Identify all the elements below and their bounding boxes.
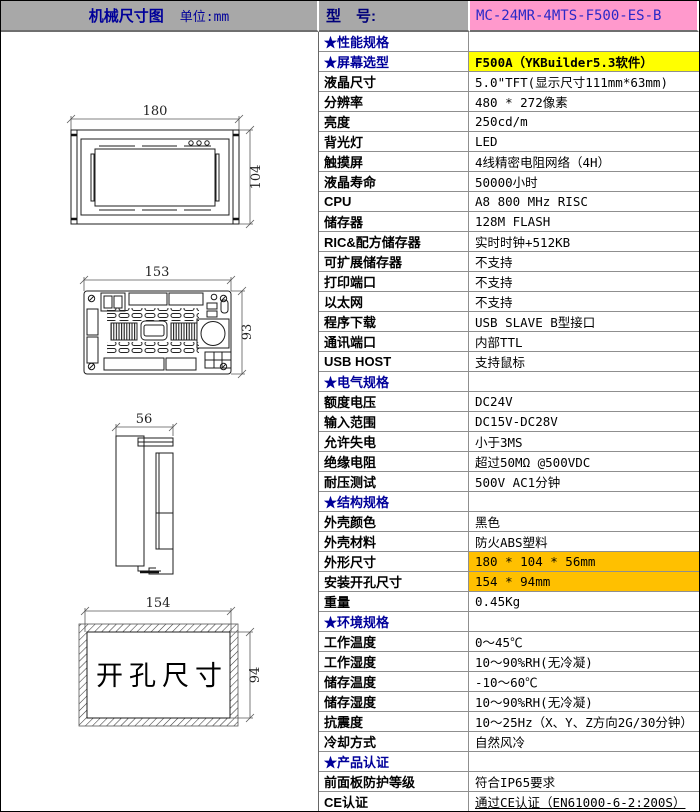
spec-section-row: ★性能规格 bbox=[319, 32, 699, 52]
spec-row: 背光灯LED bbox=[319, 132, 699, 152]
spec-label: 额度电压 bbox=[319, 392, 469, 411]
spec-value: DC24V bbox=[469, 392, 699, 411]
spec-value bbox=[469, 372, 699, 391]
spec-label: ★性能规格 bbox=[319, 32, 469, 51]
cutout-caption: 开孔尺寸 bbox=[96, 661, 228, 692]
spec-value: 480 * 272像素 bbox=[469, 92, 699, 111]
spec-value: 内部TTL bbox=[469, 332, 699, 351]
spec-row: 分辨率480 * 272像素 bbox=[319, 92, 699, 112]
spec-label: 耐压测试 bbox=[319, 472, 469, 491]
spec-label: 前面板防护等级 bbox=[319, 772, 469, 791]
spec-value: 通过CE认证（EN61000-6-2:200S） bbox=[469, 792, 699, 811]
spec-value: USB SLAVE B型接口 bbox=[469, 312, 699, 331]
unit-label: 单位:mm bbox=[180, 6, 229, 25]
spec-row: 耐压测试500V AC1分钟 bbox=[319, 472, 699, 492]
spec-row: 通讯端口内部TTL bbox=[319, 332, 699, 352]
spec-row: CE认证通过CE认证（EN61000-6-2:200S） bbox=[319, 792, 699, 811]
spec-label: 重量 bbox=[319, 592, 469, 611]
spec-row: 重量0.45Kg bbox=[319, 592, 699, 612]
header-title-cell: 机械尺寸图 单位:mm bbox=[1, 1, 319, 32]
spec-label: RIC&配方储存器 bbox=[319, 232, 469, 251]
spec-row: 工作湿度10～90%RH(无冷凝) bbox=[319, 652, 699, 672]
model-number: MC-24MR-4MTS-F500-ES-B bbox=[476, 8, 661, 24]
spec-row: 输入范围DC15V-DC28V bbox=[319, 412, 699, 432]
spec-row: 储存器128M FLASH bbox=[319, 212, 699, 232]
spec-row: 储存湿度10～90%RH(无冷凝) bbox=[319, 692, 699, 712]
spec-row: 抗震度10～25Hz（X、Y、Z方向2G/30分钟） bbox=[319, 712, 699, 732]
spec-value bbox=[469, 612, 699, 631]
spec-value: 154 * 94mm bbox=[469, 572, 699, 591]
spec-label: 储存温度 bbox=[319, 672, 469, 691]
page-title: 机械尺寸图 bbox=[89, 5, 164, 26]
spec-label: ★结构规格 bbox=[319, 492, 469, 511]
spec-section-row: ★产品认证 bbox=[319, 752, 699, 772]
spec-row: 打印端口不支持 bbox=[319, 272, 699, 292]
spec-label: 液晶寿命 bbox=[319, 172, 469, 191]
spec-label: 储存湿度 bbox=[319, 692, 469, 711]
spec-label: ★环境规格 bbox=[319, 612, 469, 631]
cutout-diagram: 154 开孔尺寸 94 bbox=[79, 596, 263, 726]
spec-row: 安装开孔尺寸154 * 94mm bbox=[319, 572, 699, 592]
spec-value: 10～25Hz（X、Y、Z方向2G/30分钟） bbox=[469, 712, 699, 731]
spec-label: 输入范围 bbox=[319, 412, 469, 431]
spec-label: 以太网 bbox=[319, 292, 469, 311]
spec-row: 前面板防护等级符合IP65要求 bbox=[319, 772, 699, 792]
spec-label: 外形尺寸 bbox=[319, 552, 469, 571]
spec-value: 实时时钟+512KB bbox=[469, 232, 699, 251]
spec-label: CPU bbox=[319, 192, 469, 211]
spec-value: 防火ABS塑料 bbox=[469, 532, 699, 551]
spec-value: 250cd/m bbox=[469, 112, 699, 131]
spec-label: 触摸屏 bbox=[319, 152, 469, 171]
spec-row: 绝缘电阻超过50MΩ @500VDC bbox=[319, 452, 699, 472]
spec-value bbox=[469, 752, 699, 771]
spec-row: 外壳颜色黑色 bbox=[319, 512, 699, 532]
spec-label: 抗震度 bbox=[319, 712, 469, 731]
spec-label: 工作温度 bbox=[319, 632, 469, 651]
spec-label: 打印端口 bbox=[319, 272, 469, 291]
dimension-drawings: 180 104 153 bbox=[1, 32, 318, 812]
spec-value: 128M FLASH bbox=[469, 212, 699, 231]
spec-row: 冷却方式自然风冷 bbox=[319, 732, 699, 752]
front-view-diagram: 180 104 bbox=[67, 104, 264, 228]
spec-value: F500A（YKBuilder5.3软件） bbox=[469, 52, 699, 71]
front-width-dim: 180 bbox=[143, 104, 168, 119]
spec-row: 外形尺寸180 * 104 * 56mm bbox=[319, 552, 699, 572]
spec-value: LED bbox=[469, 132, 699, 151]
mechanical-drawings-panel: 180 104 153 bbox=[1, 32, 319, 812]
spec-value bbox=[469, 492, 699, 511]
spec-value: A8 800 MHz RISC bbox=[469, 192, 699, 211]
side-depth-dim: 56 bbox=[136, 412, 153, 427]
spec-label: 通讯端口 bbox=[319, 332, 469, 351]
front-height-dim: 104 bbox=[249, 165, 264, 190]
spec-value: 支持鼠标 bbox=[469, 352, 699, 371]
spec-value: 不支持 bbox=[469, 252, 699, 271]
spec-label: 程序下载 bbox=[319, 312, 469, 331]
spec-label: 工作湿度 bbox=[319, 652, 469, 671]
spec-value: 10～90%RH(无冷凝) bbox=[469, 692, 699, 711]
spec-row: 触摸屏4线精密电阻网络（4H） bbox=[319, 152, 699, 172]
spec-value: 超过50MΩ @500VDC bbox=[469, 452, 699, 471]
spec-label: 允许失电 bbox=[319, 432, 469, 451]
spec-label: 液晶尺寸 bbox=[319, 72, 469, 91]
spec-label: ★产品认证 bbox=[319, 752, 469, 771]
spec-row: RIC&配方储存器实时时钟+512KB bbox=[319, 232, 699, 252]
spec-value: 4线精密电阻网络（4H） bbox=[469, 152, 699, 171]
spec-section-row: ★环境规格 bbox=[319, 612, 699, 632]
spec-value: 500V AC1分钟 bbox=[469, 472, 699, 491]
spec-value bbox=[469, 32, 699, 51]
spec-label: CE认证 bbox=[319, 792, 469, 811]
spec-value: -10～60℃ bbox=[469, 672, 699, 691]
cutout-height-dim: 94 bbox=[248, 667, 263, 684]
spec-value: 自然风冷 bbox=[469, 732, 699, 751]
spec-value: 0～45℃ bbox=[469, 632, 699, 651]
spec-label: 外壳颜色 bbox=[319, 512, 469, 531]
spec-row: 允许失电小于3MS bbox=[319, 432, 699, 452]
spec-value: 小于3MS bbox=[469, 432, 699, 451]
spec-row: 外壳材料防火ABS塑料 bbox=[319, 532, 699, 552]
spec-section-row: ★电气规格 bbox=[319, 372, 699, 392]
spec-label: 绝缘电阻 bbox=[319, 452, 469, 471]
spec-row: CPUA8 800 MHz RISC bbox=[319, 192, 699, 212]
spec-value: 50000小时 bbox=[469, 172, 699, 191]
spec-row: 可扩展储存器不支持 bbox=[319, 252, 699, 272]
spec-row: 亮度250cd/m bbox=[319, 112, 699, 132]
spec-value: 5.0"TFT(显示尺寸111mm*63mm) bbox=[469, 72, 699, 91]
spec-label: USB HOST bbox=[319, 352, 469, 371]
spec-section-row: ★屏幕选型F500A（YKBuilder5.3软件） bbox=[319, 52, 699, 72]
spec-row: 额度电压DC24V bbox=[319, 392, 699, 412]
spec-label: 安装开孔尺寸 bbox=[319, 572, 469, 591]
spec-label: 亮度 bbox=[319, 112, 469, 131]
spec-label: 分辨率 bbox=[319, 92, 469, 111]
spec-row: 液晶尺寸5.0"TFT(显示尺寸111mm*63mm) bbox=[319, 72, 699, 92]
spec-value: DC15V-DC28V bbox=[469, 412, 699, 431]
model-label: 型 号: bbox=[326, 5, 376, 26]
spec-label: 外壳材料 bbox=[319, 532, 469, 551]
spec-sheet-page: 机械尺寸图 单位:mm 型 号: MC-24MR-4MTS-F500-ES-B bbox=[0, 0, 700, 812]
spec-section-row: ★结构规格 bbox=[319, 492, 699, 512]
spec-label: 可扩展储存器 bbox=[319, 252, 469, 271]
rear-width-dim: 153 bbox=[145, 265, 170, 280]
cutout-width-dim: 154 bbox=[146, 596, 171, 611]
spec-row: 以太网不支持 bbox=[319, 292, 699, 312]
spec-value: 符合IP65要求 bbox=[469, 772, 699, 791]
spec-row: 液晶寿命50000小时 bbox=[319, 172, 699, 192]
spec-value: 180 * 104 * 56mm bbox=[469, 552, 699, 571]
spec-label: 冷却方式 bbox=[319, 732, 469, 751]
spec-table: ★性能规格★屏幕选型F500A（YKBuilder5.3软件）液晶尺寸5.0"T… bbox=[319, 32, 699, 811]
model-value-cell: MC-24MR-4MTS-F500-ES-B bbox=[470, 1, 699, 32]
spec-value: 不支持 bbox=[469, 272, 699, 291]
spec-row: 工作温度0～45℃ bbox=[319, 632, 699, 652]
spec-value: 10～90%RH(无冷凝) bbox=[469, 652, 699, 671]
spec-label: ★屏幕选型 bbox=[319, 52, 469, 71]
header-row: 机械尺寸图 单位:mm 型 号: MC-24MR-4MTS-F500-ES-B bbox=[1, 1, 699, 32]
model-label-cell: 型 号: bbox=[319, 1, 470, 32]
spec-row: 程序下载USB SLAVE B型接口 bbox=[319, 312, 699, 332]
spec-label: ★电气规格 bbox=[319, 372, 469, 391]
side-view-diagram: 56 bbox=[112, 412, 177, 574]
rear-view-diagram: 153 bbox=[80, 265, 255, 378]
spec-label: 储存器 bbox=[319, 212, 469, 231]
spec-value: 0.45Kg bbox=[469, 592, 699, 611]
spec-label: 背光灯 bbox=[319, 132, 469, 151]
rear-height-dim: 93 bbox=[240, 324, 255, 341]
spec-value: 黑色 bbox=[469, 512, 699, 531]
spec-value: 不支持 bbox=[469, 292, 699, 311]
spec-row: 储存温度-10～60℃ bbox=[319, 672, 699, 692]
spec-row: USB HOST支持鼠标 bbox=[319, 352, 699, 372]
